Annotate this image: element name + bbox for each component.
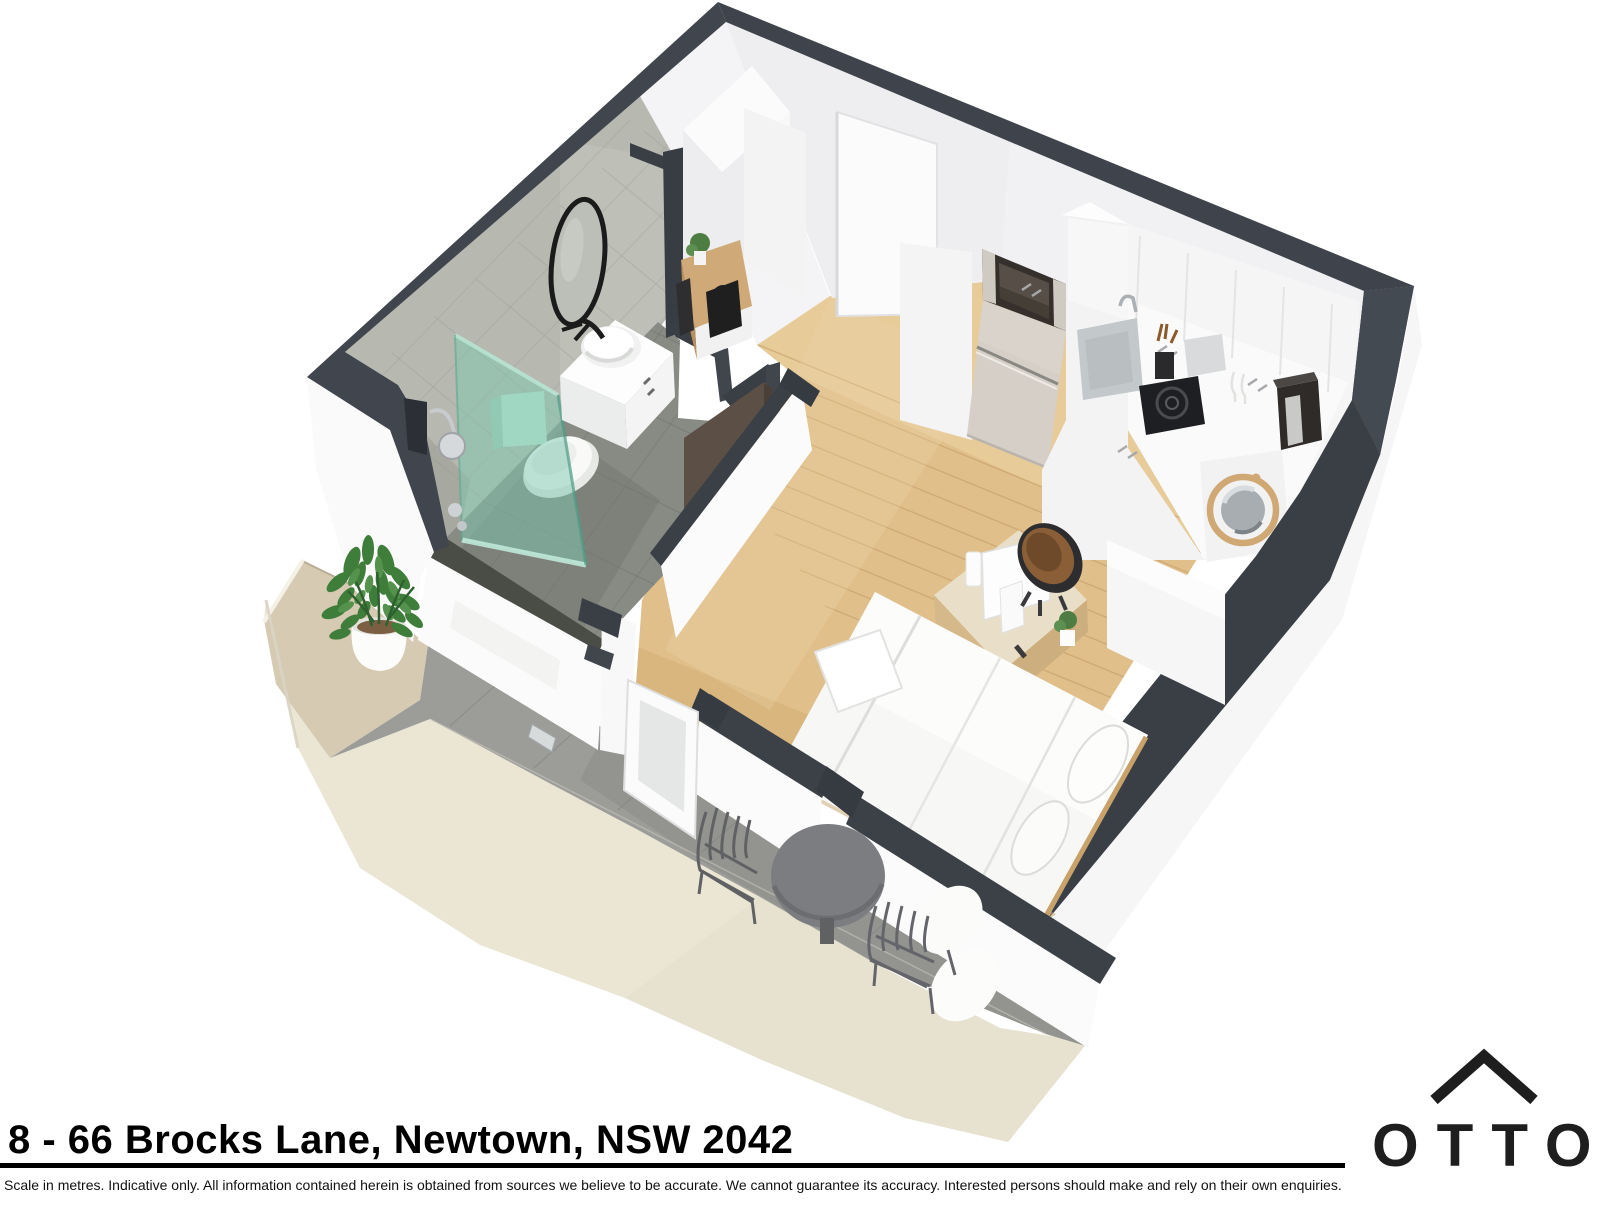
svg-text:Scale in metres. Indicative on: Scale in metres. Indicative only. All in… bbox=[4, 1177, 1342, 1193]
svg-text:OTTO: OTTO bbox=[1372, 1112, 1600, 1179]
svg-text:8 - 66 Brocks Lane, Newtown, N: 8 - 66 Brocks Lane, Newtown, NSW 2042 bbox=[8, 1118, 793, 1162]
